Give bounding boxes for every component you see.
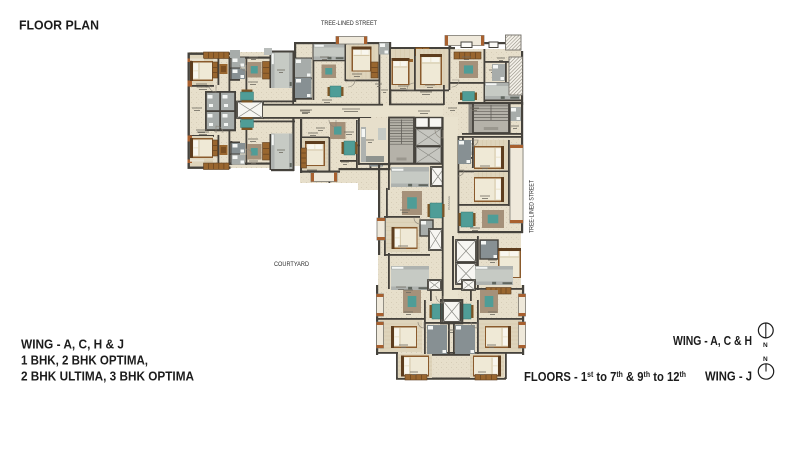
svg-text:1 BHK, 2 BHK OPTIMA,: 1 BHK, 2 BHK OPTIMA,: [21, 354, 148, 368]
svg-text:N: N: [763, 356, 768, 363]
svg-text:FLOOR PLAN: FLOOR PLAN: [19, 18, 99, 33]
svg-text:WING - A, C, H & J: WING - A, C, H & J: [21, 338, 124, 352]
svg-text:FLOORS - 1st to 7th & 9th to 1: FLOORS - 1st to 7th & 9th to 12th: [524, 369, 686, 384]
svg-text:WING - A, C & H: WING - A, C & H: [673, 334, 752, 348]
svg-text:WING - J: WING - J: [705, 370, 752, 384]
svg-text:2 BHK ULTIMA, 3 BHK OPTIMA: 2 BHK ULTIMA, 3 BHK OPTIMA: [21, 370, 194, 384]
svg-text:TREE-LINED STREET: TREE-LINED STREET: [529, 180, 536, 233]
svg-text:PASSAGE: PASSAGE: [447, 196, 451, 210]
svg-text:N: N: [763, 342, 768, 349]
svg-text:TREE-LINED STREET: TREE-LINED STREET: [321, 20, 377, 27]
svg-text:COURTYARD: COURTYARD: [274, 261, 309, 268]
